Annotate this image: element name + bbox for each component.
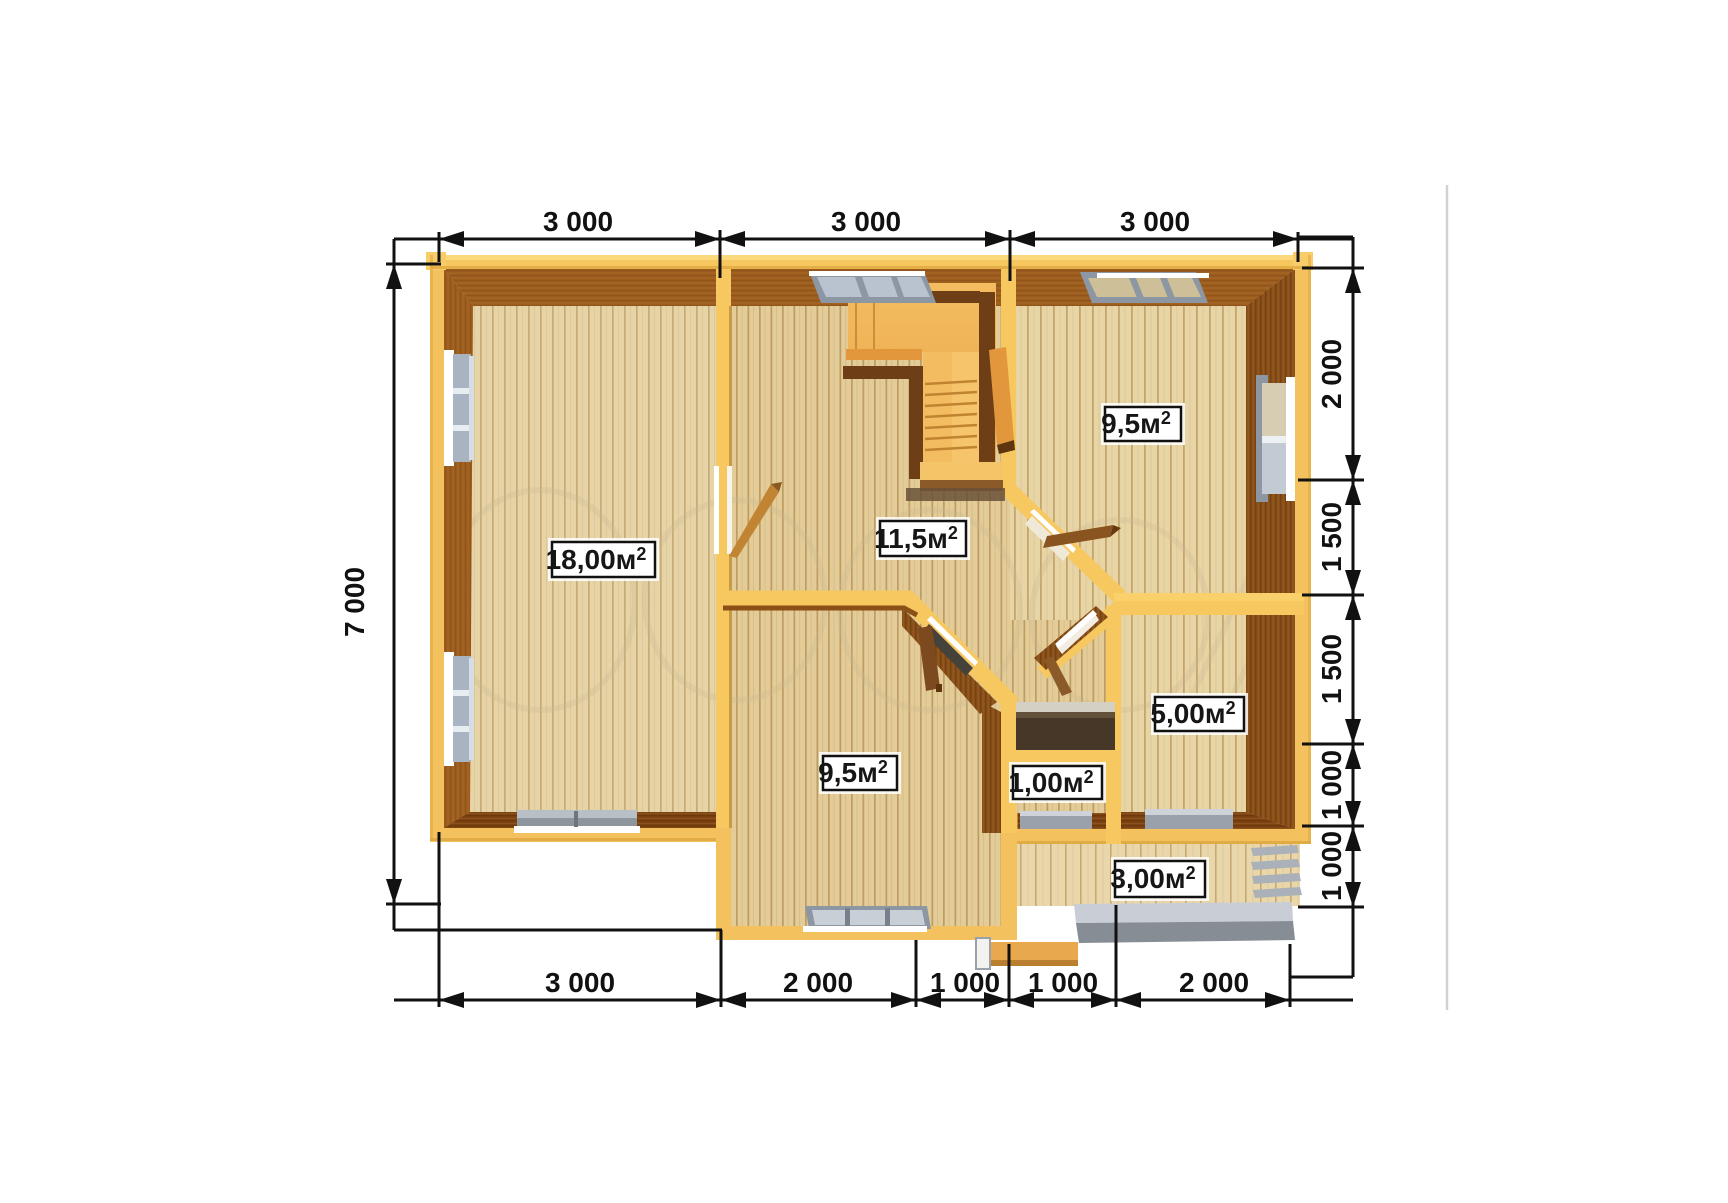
svg-text:3 000: 3 000 xyxy=(1120,206,1190,237)
svg-text:3,00м2: 3,00м2 xyxy=(1110,863,1195,894)
svg-text:1 000: 1 000 xyxy=(1316,750,1347,820)
svg-text:2 000: 2 000 xyxy=(783,967,853,998)
svg-text:3 000: 3 000 xyxy=(543,206,613,237)
svg-text:3 000: 3 000 xyxy=(545,967,615,998)
svg-text:1 500: 1 500 xyxy=(1316,634,1347,704)
svg-text:7 000: 7 000 xyxy=(339,567,370,637)
svg-text:5,00м2: 5,00м2 xyxy=(1150,698,1235,729)
svg-text:1 000: 1 000 xyxy=(1028,967,1098,998)
svg-text:9,5м2: 9,5м2 xyxy=(818,757,888,788)
svg-text:2 000: 2 000 xyxy=(1316,339,1347,409)
svg-text:2 000: 2 000 xyxy=(1179,967,1249,998)
svg-text:1 000: 1 000 xyxy=(930,967,1000,998)
svg-text:1,00м2: 1,00м2 xyxy=(1008,767,1093,798)
svg-text:9,5м2: 9,5м2 xyxy=(1101,408,1171,439)
svg-text:3 000: 3 000 xyxy=(831,206,901,237)
svg-text:11,5м2: 11,5м2 xyxy=(874,523,958,554)
svg-text:18,00м2: 18,00м2 xyxy=(546,544,647,575)
svg-text:1 500: 1 500 xyxy=(1316,502,1347,572)
svg-text:1 000: 1 000 xyxy=(1316,831,1347,901)
